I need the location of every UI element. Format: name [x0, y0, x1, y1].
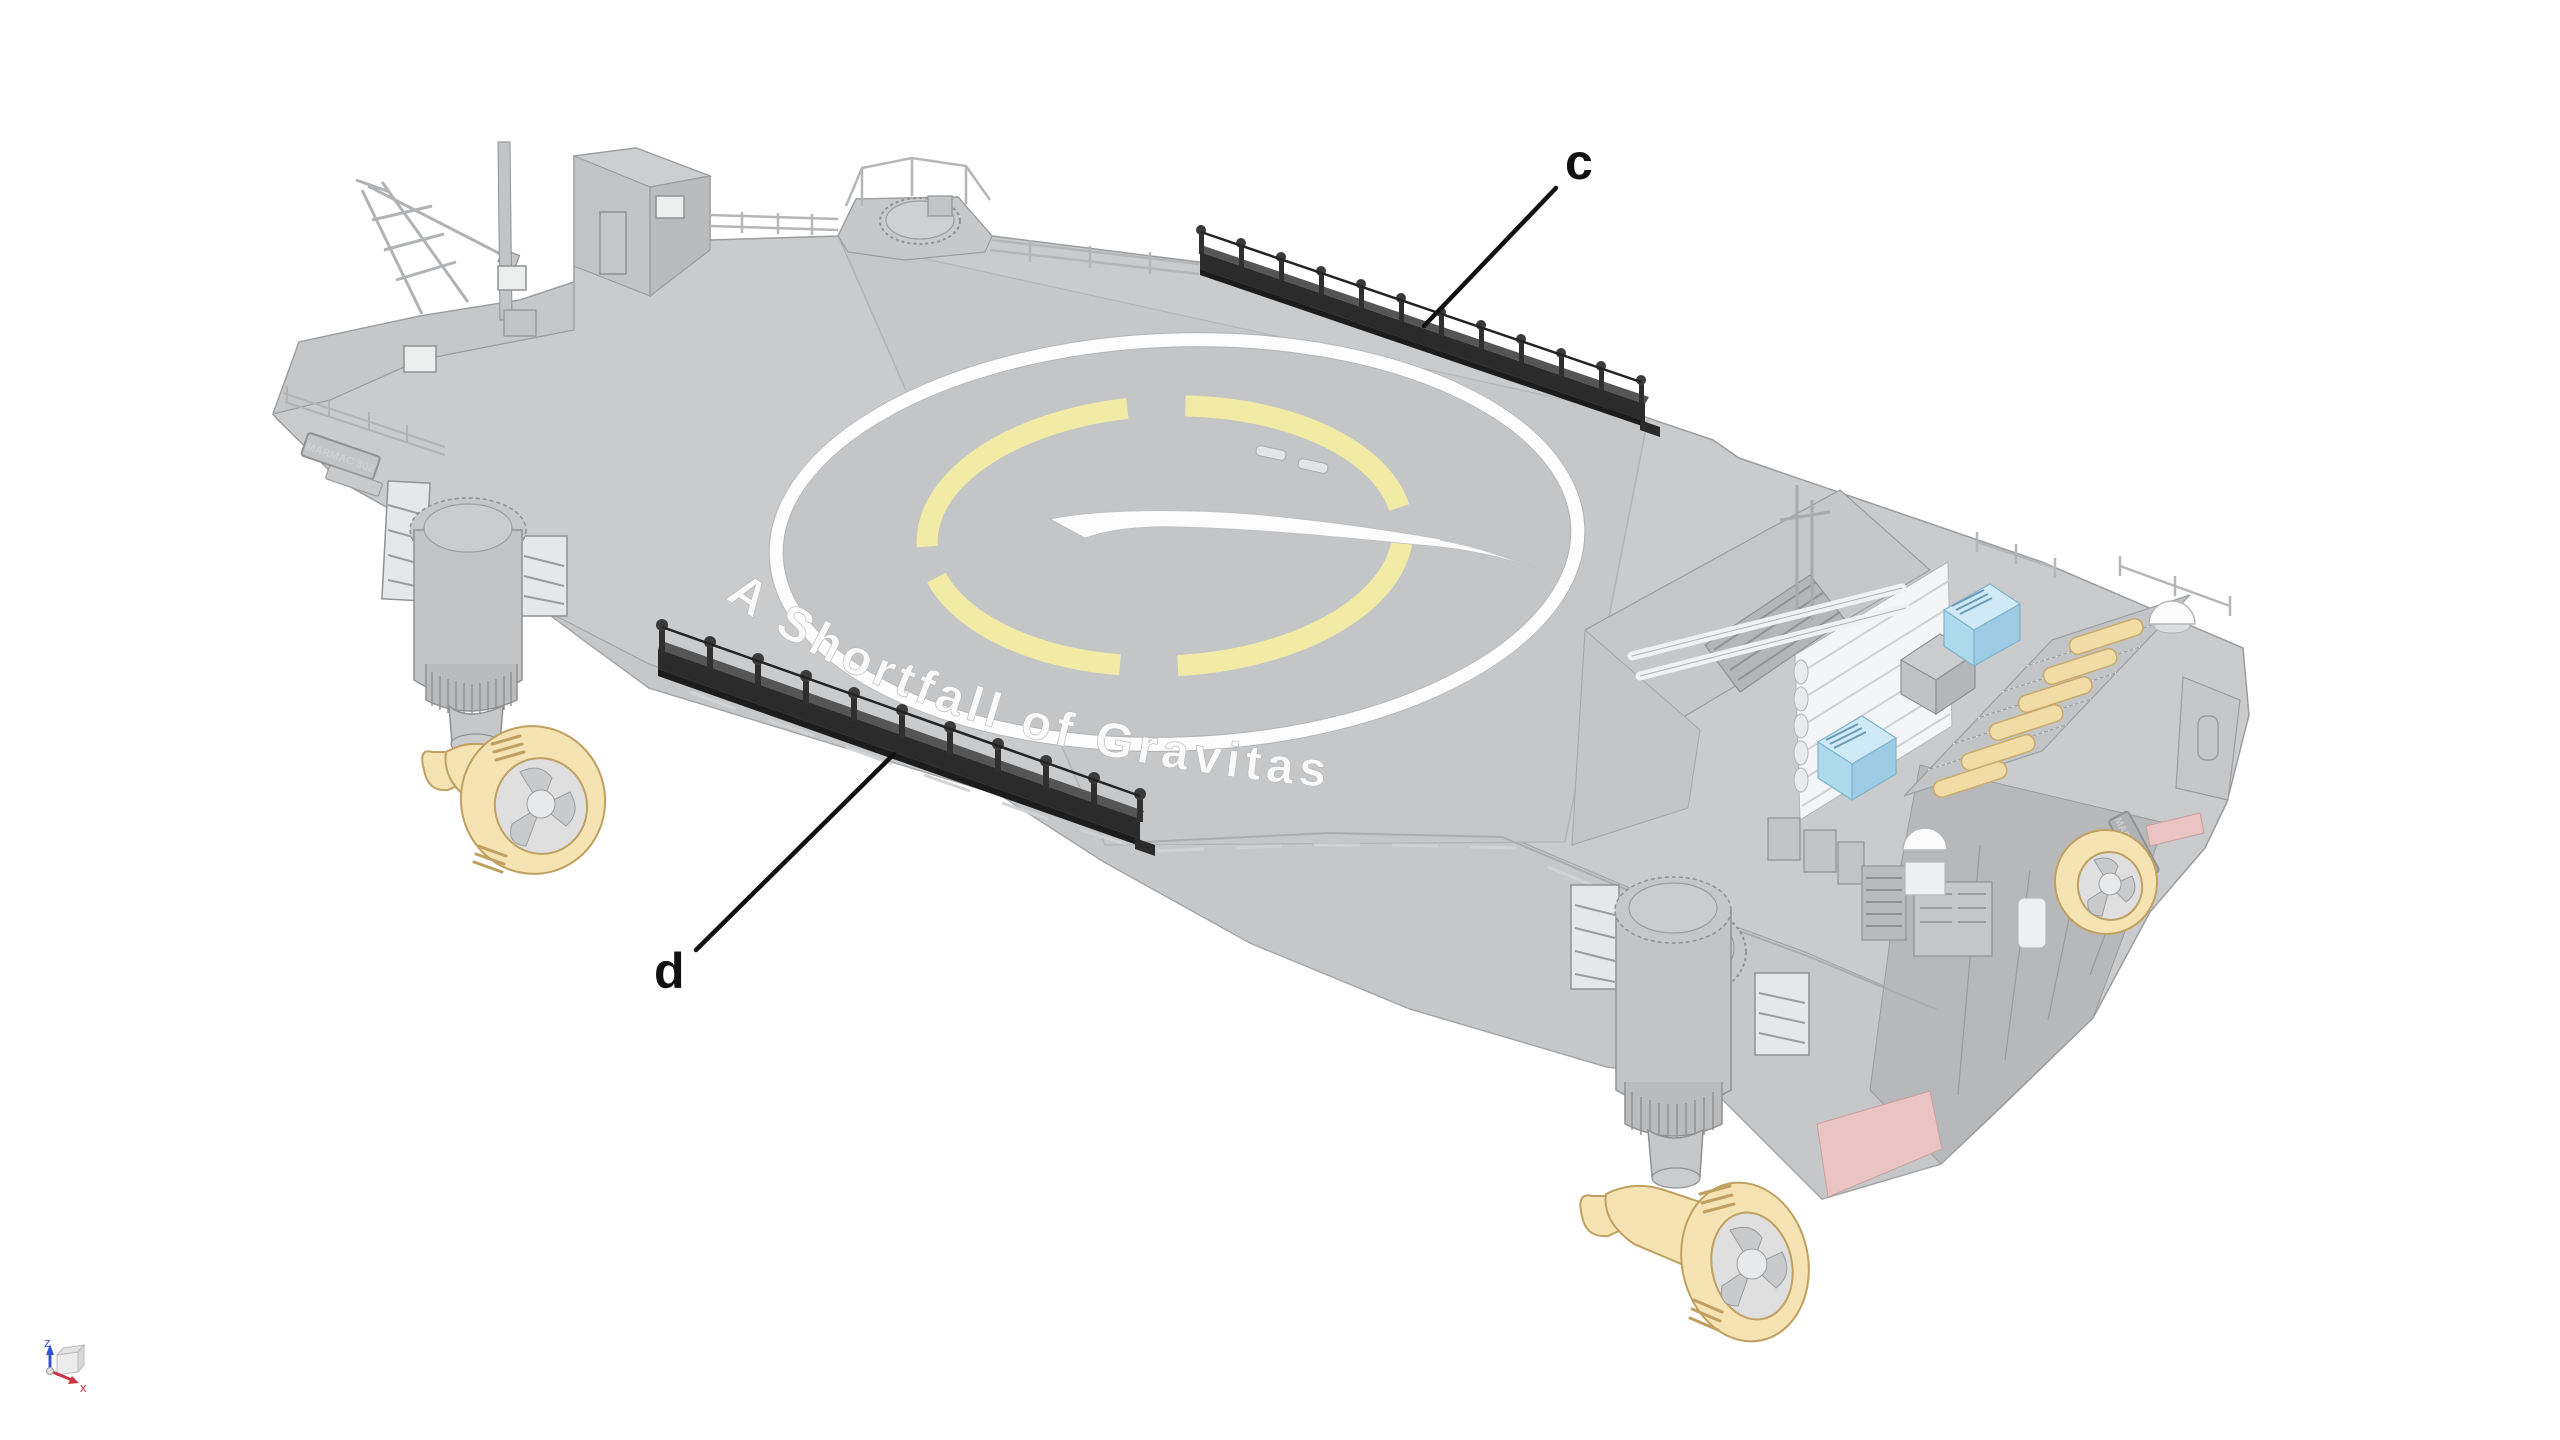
svg-text:d: d: [654, 943, 685, 999]
svg-text:x: x: [80, 1380, 87, 1395]
svg-text:z: z: [44, 1335, 51, 1350]
svg-text:c: c: [1565, 134, 1593, 190]
